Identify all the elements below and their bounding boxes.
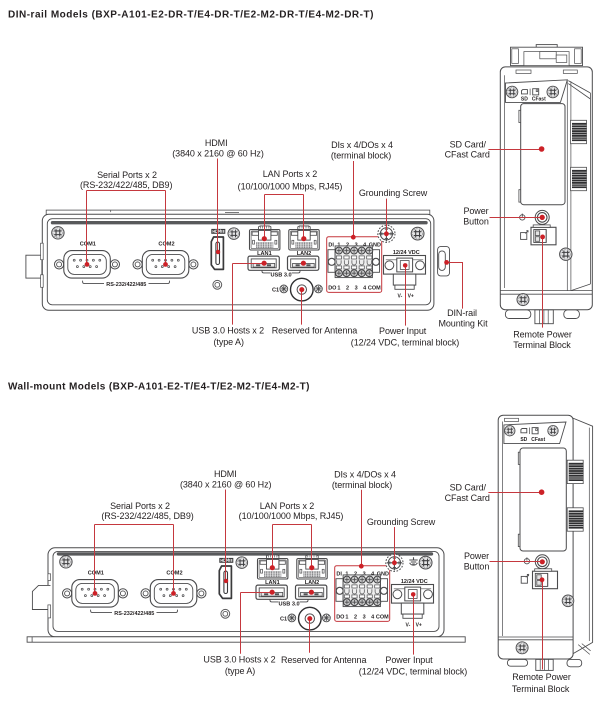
svg-text:Reserved for Antenna: Reserved for Antenna — [281, 655, 367, 665]
svg-text:Terminal Block: Terminal Block — [513, 340, 571, 350]
svg-text:Power: Power — [464, 551, 489, 561]
svg-text:(terminal block): (terminal block) — [331, 151, 391, 161]
svg-text:Remote Power: Remote Power — [512, 672, 571, 682]
svg-text:(3840 x 2160 @ 60 Hz): (3840 x 2160 @ 60 Hz) — [180, 480, 272, 490]
svg-text:(3840 x 2160 @ 60 Hz): (3840 x 2160 @ 60 Hz) — [172, 149, 264, 159]
svg-text:Remote Power: Remote Power — [513, 330, 572, 340]
svg-text:(type A): (type A) — [214, 337, 244, 347]
svg-text:(12/24 VDC, terminal block): (12/24 VDC, terminal block) — [359, 667, 467, 677]
svg-text:(RS-232/422/485, DB9): (RS-232/422/485, DB9) — [101, 511, 193, 521]
svg-text:LAN Ports x 2: LAN Ports x 2 — [263, 169, 318, 179]
svg-text:DIs x 4/DOs x 4: DIs x 4/DOs x 4 — [331, 140, 393, 150]
svg-text:Wall-mount Models (BXP-A101-E2: Wall-mount Models (BXP-A101-E2-T/E4-T/E2… — [8, 382, 310, 393]
svg-text:DIs x 4/DOs x 4: DIs x 4/DOs x 4 — [334, 470, 396, 480]
svg-text:Button: Button — [463, 217, 489, 227]
svg-text:HDMI: HDMI — [214, 469, 237, 479]
svg-text:Grounding Screw: Grounding Screw — [367, 517, 436, 527]
svg-text:CFast: CFast — [531, 437, 545, 443]
svg-text:Serial Ports x 2: Serial Ports x 2 — [110, 501, 170, 511]
svg-text:USB 3.0 Hosts x 2: USB 3.0 Hosts x 2 — [203, 655, 275, 665]
svg-text:(RS-232/422/485, DB9): (RS-232/422/485, DB9) — [80, 180, 172, 190]
svg-text:USB 3.0 Hosts x 2: USB 3.0 Hosts x 2 — [192, 326, 264, 336]
svg-text:Mounting Kit: Mounting Kit — [438, 319, 488, 329]
svg-text:Terminal Block: Terminal Block — [512, 684, 570, 694]
svg-text:CFast Card: CFast Card — [445, 493, 490, 503]
svg-text:SD: SD — [520, 437, 527, 443]
svg-text:(12/24 VDC, terminal block): (12/24 VDC, terminal block) — [351, 338, 459, 348]
svg-text:Power: Power — [463, 206, 488, 216]
svg-text:LAN Ports x 2: LAN Ports x 2 — [260, 501, 315, 511]
svg-text:DIN-rail: DIN-rail — [447, 308, 477, 318]
svg-text:SD Card/: SD Card/ — [450, 483, 487, 493]
svg-text:HDMI: HDMI — [205, 138, 228, 148]
svg-text:(type A): (type A) — [225, 666, 255, 676]
svg-text:(terminal block): (terminal block) — [332, 480, 392, 490]
svg-text:CFast Card: CFast Card — [445, 150, 490, 160]
svg-text:Power Input: Power Input — [379, 326, 427, 336]
svg-text:Reserved for Antenna: Reserved for Antenna — [272, 326, 358, 336]
svg-text:SD Card/: SD Card/ — [450, 139, 487, 149]
svg-text:Button: Button — [464, 562, 490, 572]
svg-text:DIN-rail Models (BXP-A101-E2-D: DIN-rail Models (BXP-A101-E2-DR-T/E4-DR-… — [8, 10, 374, 21]
svg-text:SD: SD — [521, 96, 528, 102]
svg-text:Power Input: Power Input — [385, 655, 433, 665]
svg-text:Grounding Screw: Grounding Screw — [359, 188, 428, 198]
svg-text:(10/100/1000 Mbps, RJ45): (10/100/1000 Mbps, RJ45) — [238, 182, 343, 192]
svg-text:Serial Ports x 2: Serial Ports x 2 — [97, 170, 157, 180]
svg-text:CFast: CFast — [532, 96, 546, 102]
svg-text:(10/100/1000 Mbps, RJ45): (10/100/1000 Mbps, RJ45) — [239, 511, 344, 521]
